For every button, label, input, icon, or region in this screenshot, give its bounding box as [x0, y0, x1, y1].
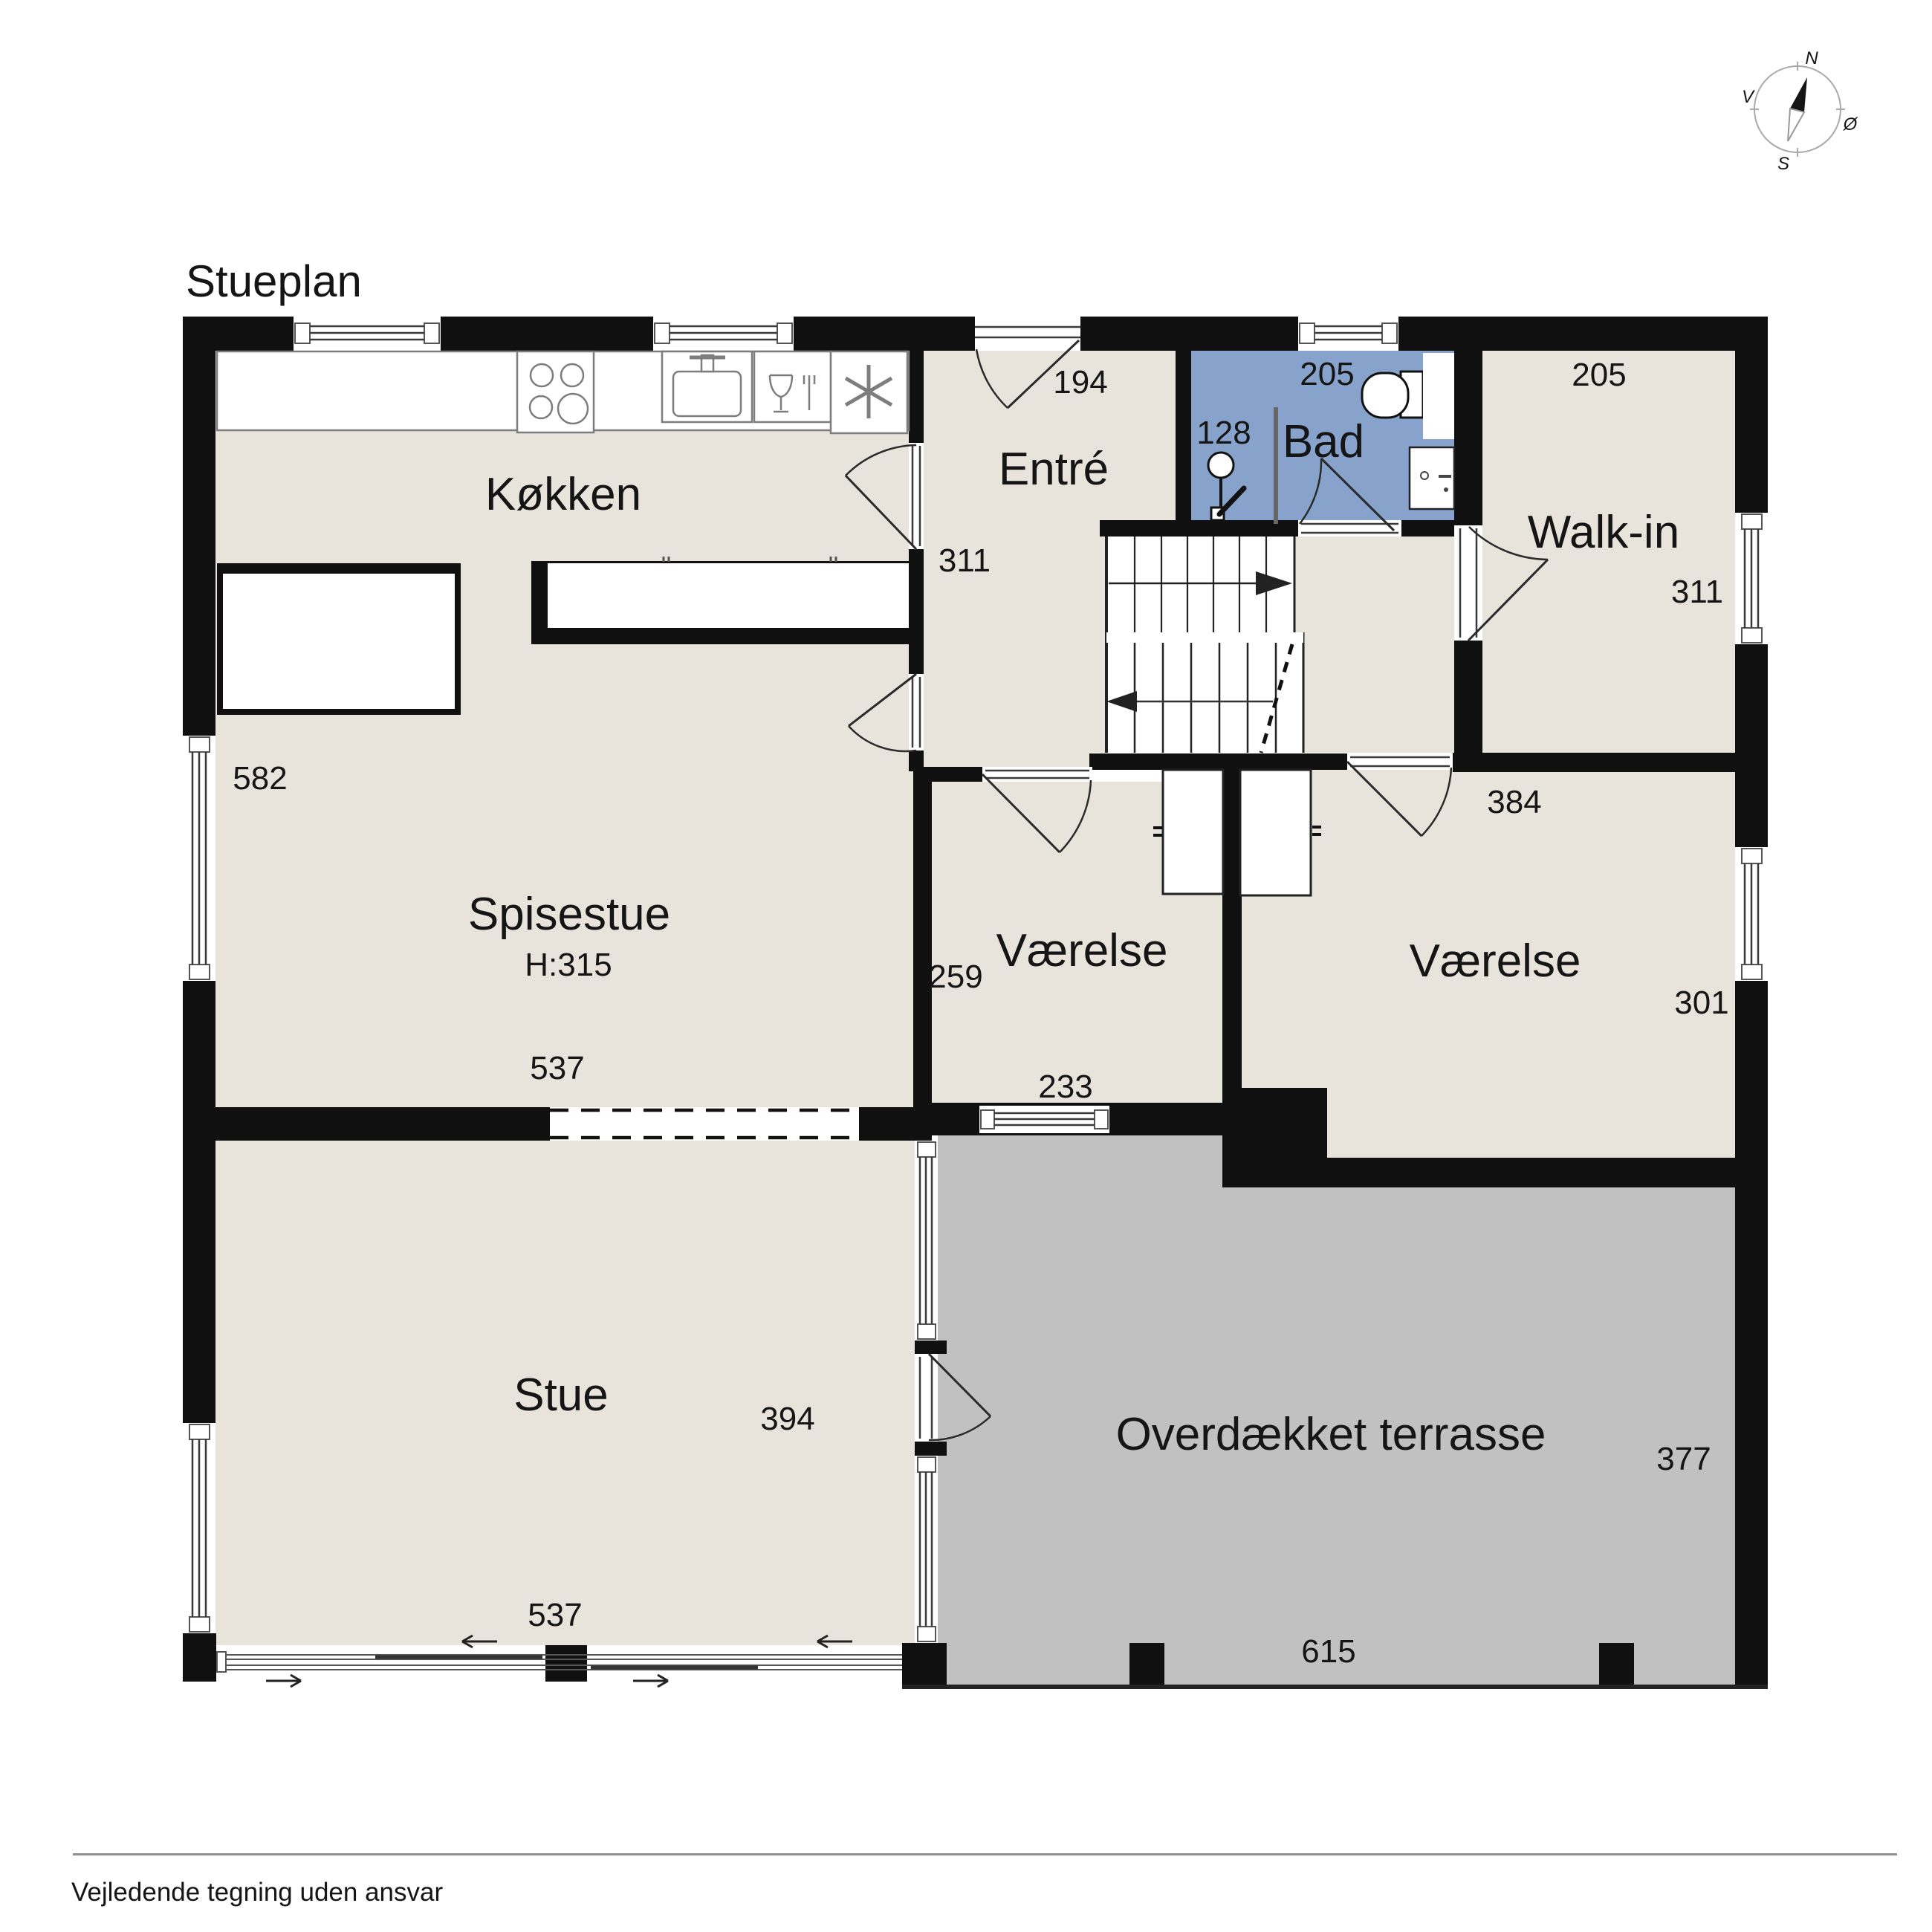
svg-text:Værelse: Værelse [1410, 936, 1581, 987]
svg-text:394: 394 [760, 1401, 814, 1437]
svg-text:Vejledende tegning uden ansvar: Vejledende tegning uden ansvar [71, 1878, 443, 1907]
svg-text:259: 259 [928, 959, 982, 995]
svg-text:S: S [1777, 154, 1789, 174]
svg-text:537: 537 [530, 1050, 584, 1086]
svg-text:N: N [1805, 48, 1818, 68]
svg-text:233: 233 [1038, 1069, 1092, 1105]
svg-text:Ø: Ø [1843, 114, 1858, 134]
svg-text:V: V [1742, 87, 1755, 107]
svg-text:301: 301 [1674, 985, 1728, 1021]
svg-text:Bad: Bad [1283, 416, 1364, 467]
svg-text:Værelse: Værelse [996, 925, 1168, 976]
svg-text:Køkken: Køkken [485, 469, 641, 520]
svg-text:582: 582 [233, 760, 287, 797]
svg-text:384: 384 [1487, 784, 1541, 820]
svg-text:615: 615 [1301, 1633, 1355, 1670]
svg-text:Stueplan: Stueplan [186, 256, 362, 306]
svg-text:537: 537 [528, 1597, 582, 1633]
svg-text:Entré: Entré [999, 444, 1109, 495]
svg-text:Overdækket terrasse: Overdækket terrasse [1116, 1409, 1546, 1460]
svg-text:311: 311 [1671, 574, 1723, 610]
svg-text:377: 377 [1656, 1441, 1711, 1477]
svg-text:Spisestue: Spisestue [468, 889, 670, 940]
svg-text:128: 128 [1196, 415, 1251, 451]
svg-text:311: 311 [939, 542, 991, 579]
svg-text:205: 205 [1572, 357, 1626, 393]
svg-text:194: 194 [1053, 364, 1107, 401]
svg-text:Stue: Stue [513, 1369, 609, 1421]
svg-text:H:315: H:315 [525, 947, 612, 983]
svg-text:205: 205 [1300, 356, 1354, 392]
svg-text:Walk-in: Walk-in [1528, 507, 1679, 558]
